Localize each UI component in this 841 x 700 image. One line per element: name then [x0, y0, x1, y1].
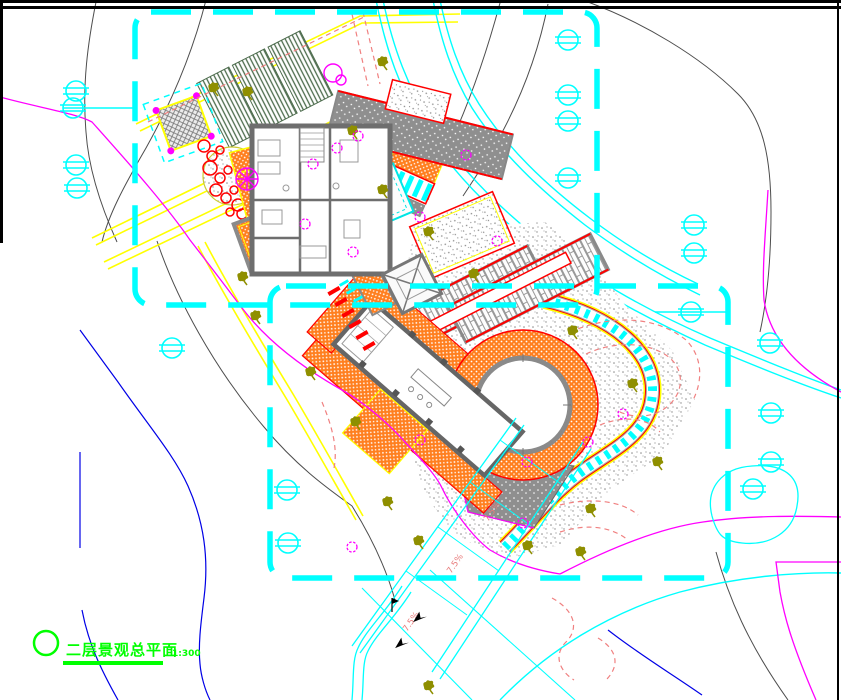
magenta-contour — [560, 516, 841, 574]
benchmark-symbol — [555, 85, 581, 105]
pond-outline — [710, 466, 798, 544]
slope-label: 7.5% — [445, 552, 466, 575]
benchmark-symbol — [555, 168, 581, 188]
plant-symbol — [305, 366, 316, 380]
benchmark-symbol — [681, 243, 707, 263]
gray-contour — [85, 2, 117, 242]
plant-symbol — [423, 680, 434, 694]
flowering-tree — [236, 168, 258, 190]
plant-symbol — [575, 546, 586, 560]
benchmark-symbol — [275, 533, 301, 553]
upper-building — [252, 126, 390, 274]
border-top-inner — [0, 6, 841, 9]
salmon-contour — [598, 638, 615, 680]
border-left — [0, 0, 3, 243]
benchmark-symbol — [63, 155, 89, 175]
benchmark-symbol — [64, 178, 90, 198]
plant-symbol — [652, 456, 663, 470]
benchmark-symbol — [757, 333, 783, 353]
blue-contour — [608, 630, 702, 695]
plant-symbol — [237, 271, 248, 285]
red-step — [327, 286, 340, 296]
flowering-tree-branches — [236, 168, 258, 190]
benchmark-symbol — [758, 403, 784, 423]
gray-contour — [588, 2, 771, 332]
title-block: 二层景观总平面 1:300 — [34, 631, 201, 665]
benchmark-symbol — [555, 111, 581, 131]
slope-arrow — [394, 637, 409, 653]
shrub-cluster — [324, 64, 346, 85]
benchmark-symbol — [740, 479, 766, 499]
border-top-outer — [0, 0, 841, 3]
title-bullet-circle — [34, 631, 58, 655]
plant-symbol — [382, 496, 393, 510]
shrub-symbol — [347, 542, 357, 552]
benchmark-symbol — [555, 30, 581, 50]
border-right — [837, 0, 839, 700]
plant-symbol — [377, 56, 388, 70]
benchmark-symbol — [681, 215, 707, 235]
cross-path — [430, 570, 575, 700]
road-curve-low — [500, 573, 841, 700]
magenta-contour — [763, 190, 841, 392]
cross-path — [362, 588, 472, 700]
shrub-cluster-large — [324, 64, 342, 82]
benchmark-symbol — [274, 480, 300, 500]
salmon-contour — [552, 598, 574, 680]
plant-symbol — [250, 310, 261, 324]
cad-drawing-viewport: 7.5% 7.5% 7.5% 二层景观总平面 1:300 — [0, 0, 841, 700]
benchmark-symbol — [159, 338, 185, 358]
site-plan-canvas: 7.5% 7.5% 7.5% 二层景观总平面 1:300 — [0, 0, 841, 700]
magenta-contour — [776, 562, 841, 700]
rock — [198, 140, 210, 152]
plan-title: 二层景观总平面 — [66, 641, 178, 659]
salmon-contour — [322, 402, 335, 468]
plan-scale: 1:300 — [172, 649, 201, 659]
title-underline — [63, 661, 163, 665]
